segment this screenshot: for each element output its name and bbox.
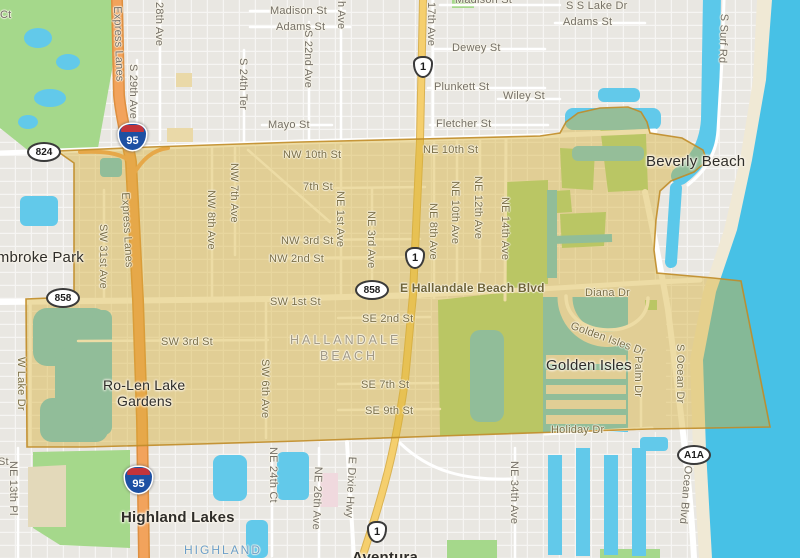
street-label-plunkett-st: Plunkett St	[434, 81, 489, 93]
shield-text: 824	[36, 147, 53, 158]
street-label-e-hallandale-beach-blvd: E Hallandale Beach Blvd	[400, 281, 545, 295]
street-label-ne-1st-ave: NE 1st Ave	[334, 191, 346, 247]
street-label-adams-st-w: Adams St	[276, 21, 325, 33]
map-base	[0, 0, 800, 558]
route-shield-a1a: A1A	[677, 445, 711, 465]
street-label-ne-26th-ave: NE 26th Ave	[310, 467, 324, 531]
shield-text: 95	[126, 135, 138, 150]
street-label-ne-3rd-ave: NE 3rd Ave	[365, 211, 377, 268]
map-canvas[interactable]: Ct Madison St Adams St Mayo St Madison S…	[0, 0, 800, 558]
street-label-s-24th-ter: S 24th Ter	[237, 58, 249, 110]
street-label-dewey-st: Dewey St	[452, 42, 501, 54]
street-label-palm-dr: Palm Dr	[632, 356, 644, 397]
street-label-fletcher-st: Fletcher St	[436, 118, 491, 130]
street-label-st-partial: St	[0, 456, 9, 468]
street-label-se-2nd-st: SE 2nd St	[362, 313, 413, 325]
place-label-highland: HIGHLAND	[184, 543, 262, 557]
street-label-nw-8th-ave: NW 8th Ave	[205, 190, 217, 250]
street-label-holiday-dr: Holiday Dr	[551, 424, 604, 436]
street-label-mayo-st: Mayo St	[268, 119, 310, 131]
place-label-highland-lakes: Highland Lakes	[121, 509, 235, 526]
street-label-diana-dr: Diana Dr	[585, 287, 630, 299]
place-label-ro-len-lake: Ro-Len Lake	[103, 377, 185, 393]
street-label-17th-ave: 17th Ave	[425, 2, 437, 46]
street-label-ct: Ct	[0, 9, 11, 21]
street-label-sw-1st-st: SW 1st St	[270, 296, 321, 308]
street-label-h-ave-partial: S 22nd Ave	[302, 30, 314, 88]
street-label-s-ocean-dr: S Ocean Dr	[674, 344, 686, 403]
place-label-beach: BEACH	[320, 349, 378, 363]
street-label-ne-13th-pl: NE 13th Pl	[7, 461, 19, 516]
shield-text: 95	[132, 478, 144, 493]
street-label-ne-24th-ct: NE 24th Ct	[267, 447, 279, 503]
route-shield-sr-858-west: 858	[46, 288, 80, 308]
street-label-nw-2nd-st: NW 2nd St	[269, 253, 324, 265]
route-shield-sr-824: 824	[27, 142, 61, 162]
street-label-se-9th-st: SE 9th St	[365, 405, 413, 417]
street-label-madison-st-e: Madison St	[455, 0, 512, 6]
street-label-sw-3rd-st: SW 3rd St	[161, 336, 213, 348]
place-label-aventura: Aventura	[352, 549, 418, 558]
place-label-hallandale: HALLANDALE	[290, 333, 401, 347]
shield-text: A1A	[684, 450, 704, 461]
street-label-nw-10th-st: NW 10th St	[283, 149, 341, 161]
shield-text: 1	[374, 526, 380, 538]
street-label-wiley-st: Wiley St	[503, 90, 545, 102]
street-label-sw-6th-ave: SW 6th Ave	[259, 359, 271, 418]
shield-text: 858	[364, 285, 381, 296]
street-label-nw-7th-ave: NW 7th Ave	[228, 163, 240, 223]
street-label-s-s-lake-dr: S S Lake Dr	[566, 0, 628, 12]
shield-text: 858	[55, 293, 72, 304]
street-label-nw-3rd-st: NW 3rd St	[281, 235, 334, 247]
street-label-ne-10th-st: NE 10th St	[423, 144, 478, 156]
route-shield-sr-858-east: 858	[355, 280, 389, 300]
street-label-madison-st-w: Madison St	[270, 5, 327, 17]
place-label-pembroke-park: Pembroke Park	[0, 249, 84, 266]
street-label-ne-10th-ave: NE 10th Ave	[449, 181, 461, 244]
street-label-ne-12th-ave: NE 12th Ave	[472, 176, 484, 239]
street-label-ne-34th-ave: NE 34th Ave	[508, 461, 520, 524]
street-label-ne-14th-ave: NE 14th Ave	[499, 197, 511, 260]
street-label-ne-8th-ave: NE 8th Ave	[427, 203, 439, 260]
street-label-s-surf-rd: S Surf Rd	[716, 14, 730, 64]
place-label-beverly-beach: Beverly Beach	[646, 153, 745, 170]
shield-text: 1	[420, 61, 426, 73]
street-label-s-29th-ave: S 29th Ave	[127, 64, 139, 119]
street-label-28th-ave: 28th Ave	[153, 2, 165, 46]
shield-text: 1	[412, 252, 418, 264]
street-label-se-7th-st: SE 7th St	[361, 379, 409, 391]
street-label-sw-31st-ave: SW 31st Ave	[97, 224, 109, 289]
place-label-golden-isles: Golden Isles	[546, 357, 632, 374]
street-label-7th-st: 7th St	[303, 181, 333, 193]
place-label-gardens: Gardens	[117, 393, 172, 409]
street-label-adams-st-e: Adams St	[563, 16, 612, 28]
street-label-express-lanes-north: Express Lanes	[111, 6, 126, 82]
street-label-w-lake-dr: W Lake Dr	[15, 357, 27, 411]
street-label-h-ave: h Ave	[335, 1, 347, 29]
